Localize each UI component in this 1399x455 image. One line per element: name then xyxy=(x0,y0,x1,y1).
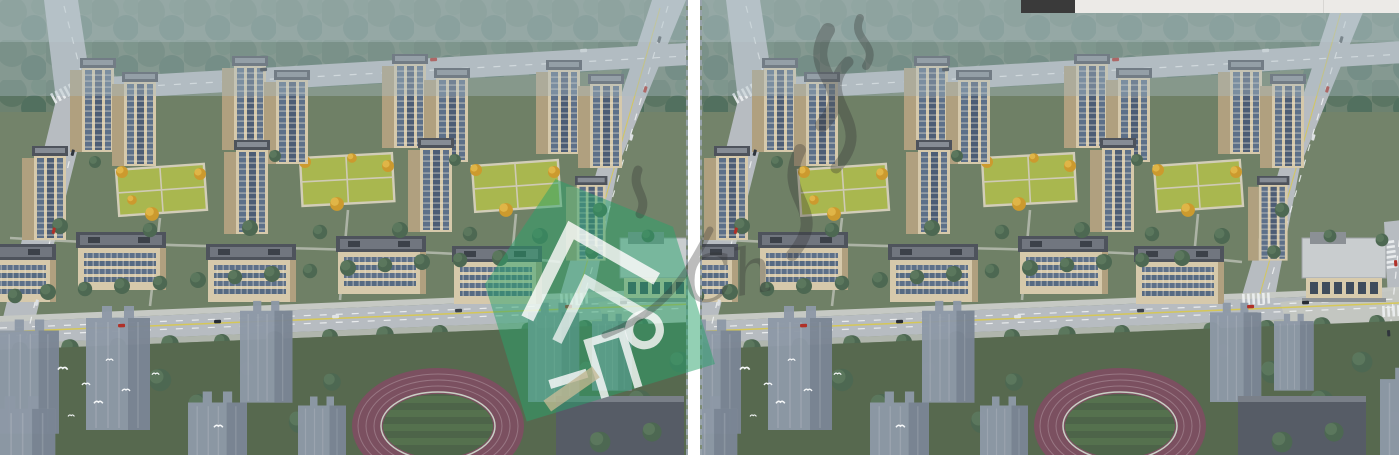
left-rendering-image xyxy=(0,0,686,455)
right-rendering-image xyxy=(702,0,1399,455)
screenshot-canvas: Ch xyxy=(0,0,1399,455)
left-rendering xyxy=(0,0,688,455)
window-tab-fragment[interactable] xyxy=(1021,0,1075,13)
right-rendering xyxy=(700,0,1399,455)
window-bar-divider xyxy=(1323,0,1324,13)
window-bar-fragment xyxy=(1021,0,1399,13)
window-titlebar xyxy=(1021,0,1399,13)
